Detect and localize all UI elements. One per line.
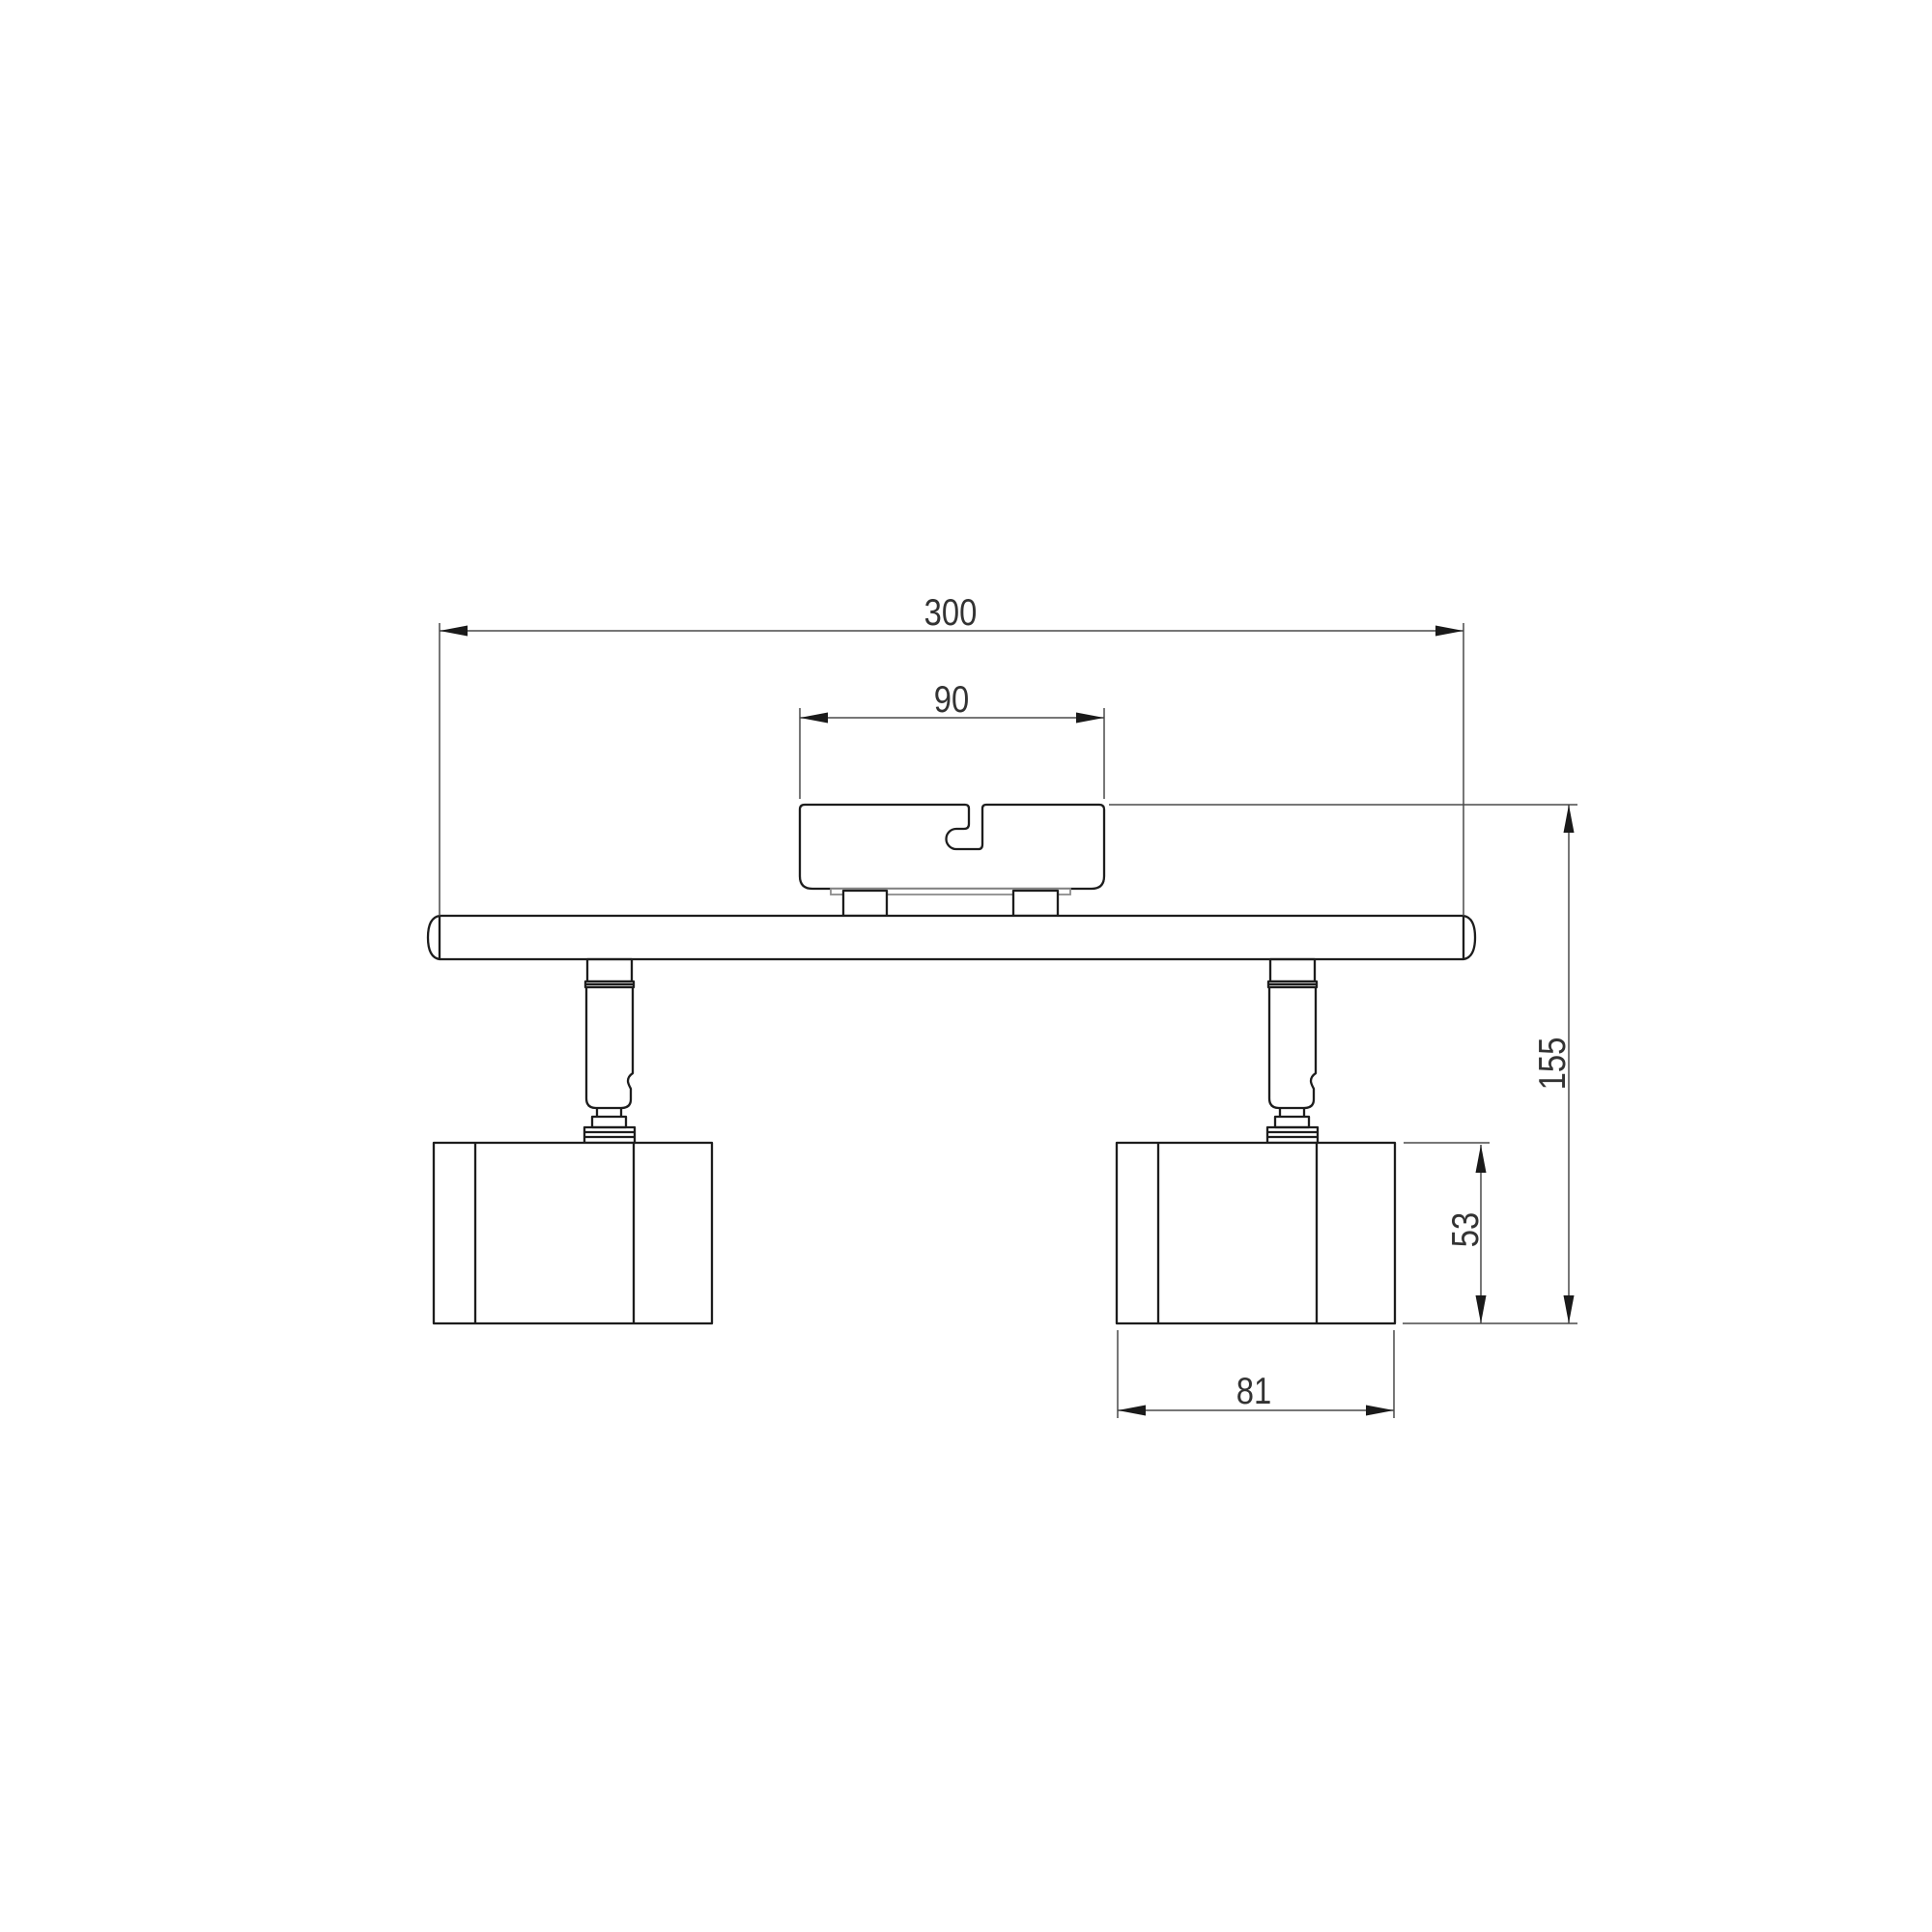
stem-swivel-foot	[584, 1127, 635, 1143]
stem-disc	[592, 1117, 626, 1127]
dim-arrow-right	[1435, 626, 1463, 637]
dim-arrow-right	[1366, 1406, 1394, 1416]
dim-label-head-height: 53	[1443, 1212, 1486, 1247]
track-bar	[428, 916, 1475, 959]
track-end-cap-right	[1463, 916, 1475, 959]
stem-collar	[587, 959, 632, 981]
lamp-unit-left	[434, 959, 712, 1323]
stem-swivel-foot-seams	[584, 1132, 635, 1137]
dimension-drawing-canvas: 300 90 155 53	[0, 0, 1932, 1932]
dim-arrow-left	[800, 713, 828, 724]
dim-head-height: 53	[1404, 1143, 1490, 1323]
dim-arrow-bottom	[1476, 1295, 1487, 1323]
dim-label-head-width: 81	[1236, 1369, 1271, 1411]
dim-label-canopy-width: 90	[934, 677, 969, 720]
mounting-canopy-with-keyhole-slot	[800, 805, 1104, 889]
spotlight-fixture	[428, 805, 1475, 1323]
dim-extension-line	[800, 708, 1104, 799]
canopy-foot-left	[843, 891, 887, 916]
track-end-cap-left	[428, 916, 440, 959]
stem-body	[586, 987, 633, 1108]
dim-canopy-width: 90	[800, 677, 1104, 799]
dim-arrow-right	[1076, 713, 1104, 724]
track-body	[440, 916, 1463, 959]
dim-head-width: 81	[1118, 1330, 1394, 1418]
dim-label-overall-height: 155	[1530, 1037, 1573, 1091]
dim-label-overall-width: 300	[924, 590, 978, 633]
canopy-foot-right	[1013, 891, 1058, 916]
stem-neck	[597, 1108, 621, 1117]
dim-arrow-top	[1564, 805, 1575, 833]
dim-arrow-left	[440, 626, 468, 637]
lamp-unit-right	[1117, 959, 1395, 1323]
dim-arrow-bottom	[1564, 1295, 1575, 1323]
drawing-page: 300 90 155 53	[0, 0, 1932, 1932]
dim-arrow-left	[1118, 1406, 1146, 1416]
dim-arrow-top	[1476, 1145, 1487, 1173]
